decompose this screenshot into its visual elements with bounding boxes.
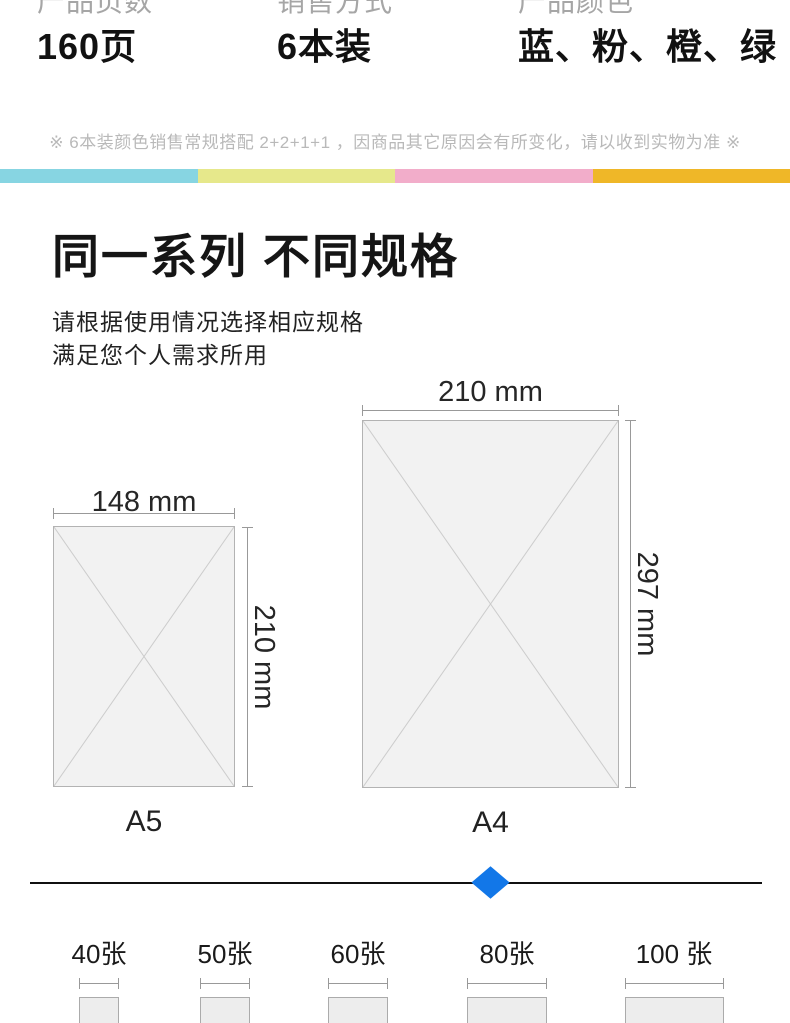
sheet-option-label: 60张: [298, 941, 418, 968]
sheet-option-60: 60张: [298, 941, 418, 1023]
spec-colors: 产品颜色 蓝、粉、橙、绿: [518, 0, 777, 67]
section-subtitle: 请根据使用情况选择相应规格 满足您个人需求所用: [52, 306, 364, 372]
stripe-segment-yellow: [198, 169, 396, 183]
a5-name-label: A5: [53, 805, 235, 839]
sheet-thickness-rect: [200, 997, 250, 1023]
section-subtitle-line2: 满足您个人需求所用: [52, 339, 364, 372]
spec-sale-method-value: 6本装: [277, 27, 393, 67]
paper-cross-lines-icon: [363, 421, 618, 787]
sheet-option-80: 80张: [447, 941, 567, 1023]
product-detail-page: 产品页数 160页 销售方式 6本装 产品颜色 蓝、粉、橙、绿 ※ 6本装颜色销…: [0, 0, 790, 1023]
a4-width-dimension-line: [362, 405, 619, 416]
section-divider-line: [30, 882, 762, 884]
diamond-icon: [471, 866, 509, 898]
sheet-option-50: 50张: [165, 941, 285, 1023]
sheet-width-dimension-line: [200, 978, 250, 989]
sheet-option-label: 40张: [39, 941, 159, 968]
a4-width-label: 210 mm: [362, 376, 619, 408]
sheet-width-dimension-line: [328, 978, 388, 989]
a5-width-dimension-line: [53, 508, 235, 519]
sheet-option-label: 100 张: [614, 941, 734, 968]
color-mix-note: ※ 6本装颜色销售常规搭配 2+2+1+1 ，因商品其它原因会有所变化，请以收到…: [0, 133, 790, 153]
sheet-thickness-rect: [625, 997, 724, 1023]
sheet-width-dimension-line: [79, 978, 119, 989]
sheet-width-dimension-line: [467, 978, 547, 989]
sheet-thickness-rect: [467, 997, 547, 1023]
sheet-option-40: 40张: [39, 941, 159, 1023]
sheet-option-label: 50张: [165, 941, 285, 968]
paper-cross-lines-icon: [54, 527, 234, 786]
spec-pages-value: 160页: [37, 27, 153, 67]
sheet-option-label: 80张: [447, 941, 567, 968]
a5-paper-rect: [53, 526, 235, 787]
section-subtitle-line1: 请根据使用情况选择相应规格: [52, 306, 364, 339]
a4-paper-rect: [362, 420, 619, 788]
sheet-thickness-rect: [328, 997, 388, 1023]
spec-sale-method: 销售方式 6本装: [277, 0, 393, 67]
stripe-segment-orange: [593, 169, 790, 183]
spec-pages-label: 产品页数: [37, 0, 153, 17]
a4-name-label: A4: [362, 806, 619, 840]
color-stripe: [0, 169, 790, 183]
section-title: 同一系列 不同规格: [52, 228, 459, 286]
sheet-thickness-rect: [79, 997, 119, 1023]
sheet-option-100: 100 张: [614, 941, 734, 1023]
a5-height-label: 210 mm: [248, 605, 280, 710]
spec-colors-value: 蓝、粉、橙、绿: [518, 27, 777, 67]
spec-colors-label: 产品颜色: [518, 0, 777, 17]
spec-sale-method-label: 销售方式: [277, 0, 393, 17]
a4-height-label: 297 mm: [631, 552, 663, 657]
stripe-segment-blue: [0, 169, 198, 183]
stripe-segment-pink: [395, 169, 593, 183]
sheet-width-dimension-line: [625, 978, 724, 989]
spec-pages: 产品页数 160页: [37, 0, 153, 67]
